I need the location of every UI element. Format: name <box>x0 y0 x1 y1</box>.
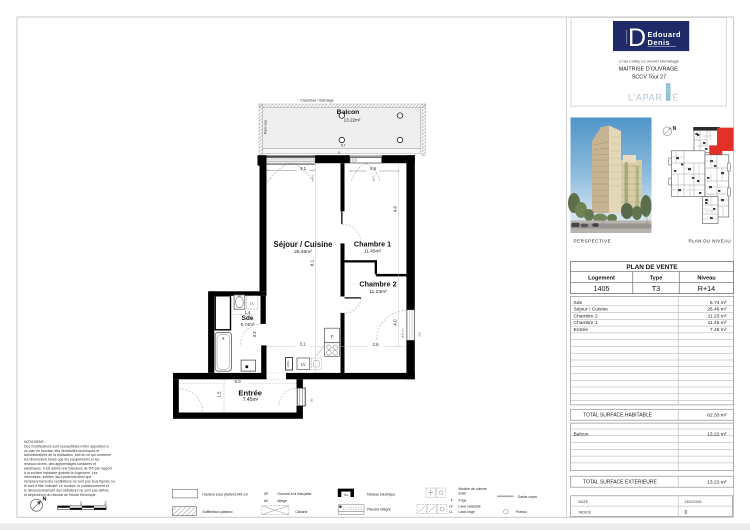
svg-text:Frigo: Frigo <box>459 498 467 502</box>
svg-text:PLAN DE VENTE: PLAN DE VENTE <box>626 264 678 271</box>
svg-text:Sde: Sde <box>574 300 583 306</box>
svg-text:11.23 m²: 11.23 m² <box>708 314 727 320</box>
svg-text:PLAN DU NIVEAU: PLAN DU NIVEAU <box>689 239 732 244</box>
svg-text:Chambre 1: Chambre 1 <box>574 320 598 326</box>
svg-text:alt/45: alt/45 <box>311 174 314 181</box>
svg-text:Chambre 2: Chambre 2 <box>359 280 396 289</box>
svg-text:Lave-vaisselle: Lave-vaisselle <box>459 505 481 509</box>
svg-text:11.23m²: 11.23m² <box>369 289 387 295</box>
svg-text:TOTAL SURFACE EXTERIEURE: TOTAL SURFACE EXTERIEURE <box>583 480 657 486</box>
svg-text:Chambre 2: Chambre 2 <box>574 314 598 320</box>
svg-text:Poteau: Poteau <box>516 510 527 514</box>
svg-text:Tableau électrique: Tableau électrique <box>367 492 395 496</box>
svg-text:Séjour / Cuisine: Séjour / Cuisine <box>574 307 609 313</box>
svg-text:PERSPECTIVE: PERSPECTIVE <box>574 239 612 244</box>
svg-text:ce plan en fonction des nécess: ce plan en fonction des nécessités techn… <box>24 449 99 453</box>
svg-text:administratives de la réalisat: administratives de la réalisation, tant … <box>24 453 111 457</box>
svg-text:É: É <box>672 92 678 102</box>
svg-text:Evier: Evier <box>459 492 468 496</box>
svg-text:T3: T3 <box>652 284 660 293</box>
svg-text:LL: LL <box>250 302 254 306</box>
svg-text:Balcon: Balcon <box>574 431 589 437</box>
svg-text:13/02/2024: 13/02/2024 <box>685 500 702 504</box>
svg-text:Chambre 1: Chambre 1 <box>354 239 391 248</box>
svg-text:5.74m²: 5.74m² <box>241 322 255 327</box>
svg-text:7.45 m²: 7.45 m² <box>710 327 727 333</box>
svg-text:alt/90 cm: alt/90 cm <box>401 329 404 339</box>
svg-text:F: F <box>331 334 334 339</box>
svg-text:3.1: 3.1 <box>299 342 306 347</box>
svg-text:2 rue Ledey Le nouvel hermetag: 2 rue Ledey Le nouvel hermetage <box>618 59 680 64</box>
svg-text:F: F <box>451 498 453 502</box>
svg-text:1405: 1405 <box>594 284 610 293</box>
svg-text:LV: LV <box>449 505 454 509</box>
svg-text:Type: Type <box>650 276 663 282</box>
svg-text:Entrée: Entrée <box>238 388 262 397</box>
svg-text:N: N <box>43 497 47 503</box>
svg-text:All: All <box>264 499 268 503</box>
svg-text:le sont à titre indicatif. Le: le sont à titre indicatif. Le nombre, le… <box>24 484 109 488</box>
svg-text:Garde-corps: Garde-corps <box>518 495 538 499</box>
svg-text:Des modifications sont suscept: Des modifications sont susceptibles d’êt… <box>24 444 109 448</box>
svg-text:4.0: 4.0 <box>393 205 398 212</box>
svg-text:13.22 m²: 13.22 m² <box>707 480 727 486</box>
svg-text:NOTA BENE :: NOTA BENE : <box>24 440 46 444</box>
svg-text:1.5: 1.5 <box>217 391 222 397</box>
svg-text:PE: PE <box>309 399 313 403</box>
svg-text:retombées, soffites, faux-plaf: retombées, soffites, faux-plafonds ainsi… <box>24 475 92 479</box>
svg-text:4.0: 4.0 <box>393 319 398 326</box>
svg-text:2.6: 2.6 <box>370 166 377 171</box>
svg-text:5.74 m²: 5.74 m² <box>710 300 727 306</box>
svg-text:DATE: DATE <box>579 500 589 504</box>
svg-text:Cabane: Cabane <box>295 510 307 514</box>
svg-text:6.7: 6.7 <box>341 143 346 147</box>
svg-text:L’APAR: L’APAR <box>628 92 663 102</box>
svg-text:7.45m²: 7.45m² <box>243 397 259 403</box>
svg-text:LV: LV <box>301 362 306 367</box>
svg-text:ETEL: ETEL <box>286 360 290 367</box>
svg-text:Allège: Allège <box>277 499 287 503</box>
svg-text:8.1: 8.1 <box>310 259 315 266</box>
svg-text:D: D <box>628 24 646 52</box>
svg-text:N: N <box>673 126 677 132</box>
svg-text:62.33 m²: 62.33 m² <box>707 413 727 419</box>
svg-text:SCCV Tour 27: SCCV Tour 27 <box>632 74 666 80</box>
svg-text:11.45m²: 11.45m² <box>364 249 382 255</box>
svg-text:Pare-vue: Pare-vue <box>264 120 268 135</box>
svg-text:5.0: 5.0 <box>234 379 241 384</box>
svg-text:11.45 m²: 11.45 m² <box>708 320 727 326</box>
svg-text:alt/45: alt/45 <box>373 175 376 182</box>
svg-text:et dépendront du résultat de l: et dépendront du résultat de l’étude the… <box>24 493 97 497</box>
svg-text:OF: OF <box>264 492 269 496</box>
svg-text:Séjour / Cuisine: Séjour / Cuisine <box>274 240 334 249</box>
svg-text:13.22 m²: 13.22 m² <box>707 431 727 437</box>
svg-text:TOTAL SURFACE HABITABLE: TOTAL SURFACE HABITABLE <box>583 413 653 419</box>
svg-text:le dimensionnement des radiate: le dimensionnement des radiateurs ne son… <box>24 488 109 492</box>
svg-text:Placard intégré: Placard intégré <box>367 507 391 511</box>
svg-text:Ouvrant à la française: Ouvrant à la française <box>277 492 311 496</box>
svg-text:26.46m²: 26.46m² <box>294 249 312 255</box>
svg-text:l’emplacement des ventilations: l’emplacement des ventilations ne sont p… <box>24 480 115 484</box>
svg-text:à la surface habitable globale: à la surface habitable globale du logeme… <box>24 471 98 475</box>
svg-text:0: 0 <box>685 510 688 516</box>
svg-text:Lave-linge: Lave-linge <box>459 510 475 514</box>
svg-text:INDICE: INDICE <box>579 510 592 514</box>
svg-text:LL: LL <box>449 510 453 514</box>
svg-text:1.4: 1.4 <box>245 310 251 315</box>
svg-text:Logement: Logement <box>588 276 615 282</box>
svg-text:R+14: R+14 <box>698 284 715 293</box>
svg-text:13.22m²: 13.22m² <box>344 118 361 123</box>
svg-text:électriques. Il est admis une: électriques. Il est admis une tolérance … <box>24 466 112 470</box>
svg-text:Module de cuisine: Module de cuisine <box>459 487 487 491</box>
svg-text:Niveau: Niveau <box>697 276 716 282</box>
svg-text:réseaux divers, des appareilla: réseaux divers, des appareillages sanita… <box>24 462 96 466</box>
svg-text:TEL: TEL <box>344 493 349 497</box>
svg-text:0: 0 <box>338 151 340 155</box>
svg-text:les dimensions tènes que les é: les dimensions tènes que les équipements… <box>24 458 100 462</box>
svg-text:Claustras / Bardage: Claustras / Bardage <box>300 99 334 103</box>
svg-text:MAÎTRISE D’OUVRAGE:: MAÎTRISE D’OUVRAGE: <box>619 66 680 73</box>
svg-text:26.46 m²: 26.46 m² <box>707 307 727 313</box>
svg-text:3.1: 3.1 <box>300 166 307 171</box>
svg-text:3.3: 3.3 <box>252 331 257 337</box>
svg-text:Entrée: Entrée <box>574 327 589 333</box>
svg-text:Soffite/faux-plafond: Soffite/faux-plafond <box>202 510 232 514</box>
svg-text:Hauteur sous plafond 245 cm: Hauteur sous plafond 245 cm <box>202 492 248 496</box>
svg-text:2.6: 2.6 <box>372 342 379 347</box>
svg-text:Denis: Denis <box>648 38 671 47</box>
